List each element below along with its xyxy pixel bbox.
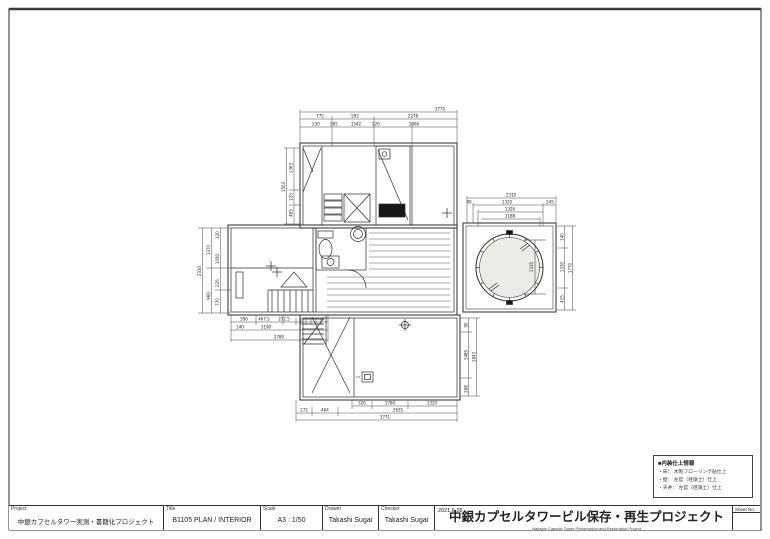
dim-label: 120 [289,193,294,201]
dim-label: 120 [215,231,220,239]
dim-label: 3775 [435,107,446,112]
drawer-name: Takashi Sugai [329,512,373,524]
page-border [9,9,761,530]
dim-label: 465 [289,209,294,217]
legend-heading: ■内装仕上情報 [658,459,748,467]
drawing-sheet: 3775 775 592 2278 230 505 1542 220 2066 … [0,0,770,539]
checker-label: Checker [381,507,400,512]
middle-unit-interior [231,227,366,313]
title-block-project-cell: Project 中銀カプセルタワー実測・書籍化プロジェクト [9,506,164,530]
drawing-title: B1105 PLAN / INTERIOR [172,512,251,524]
dim-label: 2278 [408,114,419,119]
dim-label: 775 [316,114,324,119]
dim-label: 40 [466,200,472,205]
top-unit-interior [303,146,452,225]
dim-label: 1188 [505,214,516,219]
dim-label: 1190 [261,325,272,330]
dim-label: 1363 [289,162,294,173]
dim-label: 2330 [197,265,202,276]
title-block-title-cell: Title B1105 PLAN / INTERIOR [164,506,261,530]
dim-label: 1320 [502,200,513,205]
dim-label: 2066 [409,122,420,127]
round-window-elevation [476,231,546,305]
legend-item-wall: ・壁： 左官（珪藻土）仕上 [658,477,748,485]
dim-label: 140 [236,325,244,330]
dim-label: 590 [240,317,248,322]
dim-label: 467.5 [258,317,270,322]
dim-label: 592 [351,114,359,119]
dim-label: 220 [372,122,380,127]
project-name: 中銀カプセルタワー実測・書籍化プロジェクト [18,511,155,526]
dim-label: 2635 [393,408,404,413]
dim-label: 415 [560,295,565,303]
dim-label: 1326 [505,207,516,212]
title-label: Title [166,507,175,512]
dim-label: 140 [560,233,565,241]
dim-label: 272 [300,408,308,413]
dim-label: 2780 [274,335,285,340]
interior-finish-legend: ■内装仕上情報 ・床： 木製フローリング貼仕上 ・壁： 左官（珪藻土）仕上 ・天… [653,455,753,498]
dim-label: 230 [312,122,320,127]
dim-label: 1542 [351,122,362,127]
title-block-main-cell: 2021.6.28 中銀カプセルタワービル保存・再生プロジェクト Nakagin… [435,506,733,530]
title-block-scale-cell: Scale A3 : 1/50 [261,506,323,530]
dim-label: 90 [464,322,469,328]
dim-label: 960 [206,292,211,300]
dim-label: 272.5 [278,317,290,322]
drawing-date: 2021.6.28 [438,508,462,514]
title-block-drawer-cell: Drawer Takashi Sugai [323,506,379,530]
dim-label: 464 [321,408,329,413]
project-label: Project [11,507,27,512]
dim-label: 1050 [215,253,220,264]
dim-label: 1503 [281,181,286,192]
dim-label: 1770 [568,262,573,273]
bottom-unit-interior [302,316,411,397]
title-block-checker-cell: Checker Takashi Sugai [379,506,435,530]
dim-label: 1485 [464,349,469,360]
scale-value: A3 : 1/50 [277,512,305,524]
dim-label: 1780 [385,401,396,406]
dim-label: 225 [215,279,220,287]
dim-label: 1320 [427,401,438,406]
checker-name: Takashi Sugai [385,512,429,524]
dim-label: 268 [464,385,469,393]
dim-label: 1843 [472,351,477,362]
dim-label: 3771 [380,415,391,420]
dim-label: 505 [330,122,338,127]
legend-item-ceiling: ・天井： 左官（珪藻土）仕上 [658,485,748,493]
drawer-label: Drawer [325,507,341,512]
sheet-no-label: Sheet No. [733,506,760,513]
title-block: Project 中銀カプセルタワー実測・書籍化プロジェクト Title B110… [9,505,760,530]
organization-subtitle: Nakagin Capsule Tower Preservation and R… [532,526,641,531]
organization-title: 中銀カプセルタワービル保存・再生プロジェクト [449,506,724,525]
organization-block: 中銀カプセルタワービル保存・再生プロジェクト Nakagin Capsule T… [449,506,732,531]
dim-label: 1370 [206,244,211,255]
legend-item-floor: ・床： 木製フローリング貼仕上 [658,469,748,477]
dim-label: 320 [358,401,366,406]
dim-label: 1335 [529,261,534,272]
dim-label: 1330 [560,261,565,272]
dim-label: 770 [215,298,220,306]
dim-label: 2310 [506,193,517,198]
title-block-sheet-cell: Sheet No. [733,506,760,530]
scale-label: Scale [263,507,276,512]
dim-label: 245 [546,200,554,205]
